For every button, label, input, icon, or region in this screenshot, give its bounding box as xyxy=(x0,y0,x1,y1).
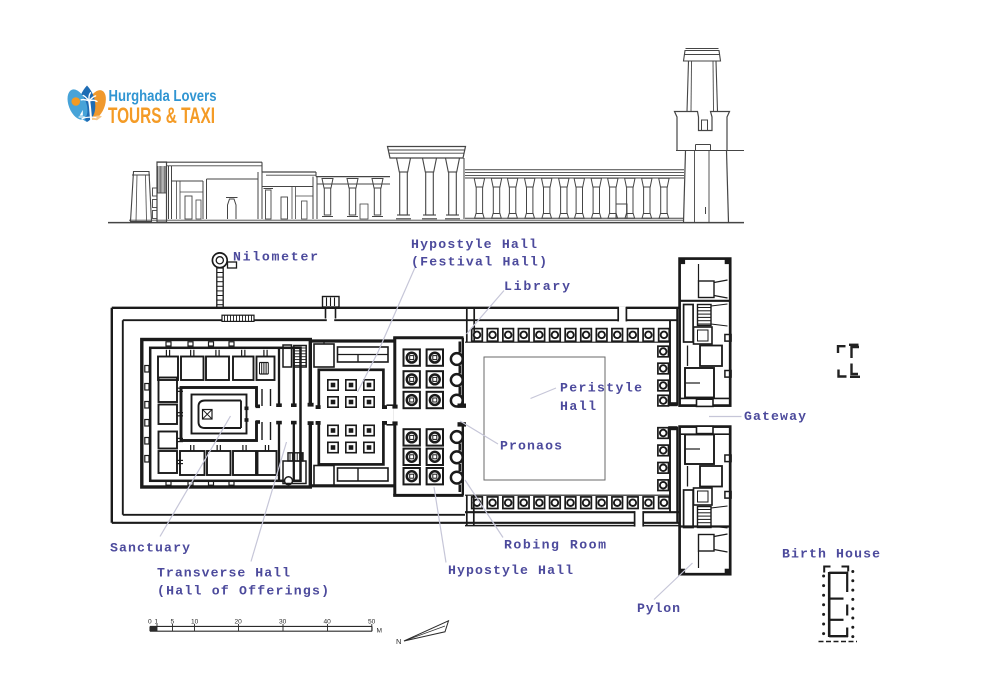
svg-text:10: 10 xyxy=(191,619,199,626)
svg-text:M: M xyxy=(377,628,383,635)
svg-text:0: 0 xyxy=(148,619,152,626)
svg-text:Robing Room: Robing Room xyxy=(504,538,606,553)
svg-text:20: 20 xyxy=(235,619,243,626)
svg-text:N: N xyxy=(396,637,401,646)
svg-text:(Festival Hall): (Festival Hall) xyxy=(411,255,547,270)
svg-text:Hall: Hall xyxy=(560,399,596,414)
svg-text:Hypostyle Hall: Hypostyle Hall xyxy=(448,563,573,578)
svg-text:1: 1 xyxy=(155,619,159,626)
svg-text:Gateway: Gateway xyxy=(744,409,806,424)
svg-text:50: 50 xyxy=(368,619,376,626)
svg-text:Nilometer: Nilometer xyxy=(233,250,318,265)
svg-text:Library: Library xyxy=(504,279,570,294)
svg-text:Pronaos: Pronaos xyxy=(500,439,562,454)
svg-text:Hypostyle Hall: Hypostyle Hall xyxy=(411,237,537,252)
svg-text:Sanctuary: Sanctuary xyxy=(110,541,190,556)
svg-text:30: 30 xyxy=(279,619,287,626)
svg-text:TOURS & TAXI: TOURS & TAXI xyxy=(108,103,215,128)
svg-text:Pylon: Pylon xyxy=(637,601,680,616)
svg-text:Peristyle: Peristyle xyxy=(560,381,642,396)
svg-text:(Hall of Offerings): (Hall of Offerings) xyxy=(157,584,329,599)
svg-text:40: 40 xyxy=(324,619,332,626)
svg-text:Transverse Hall: Transverse Hall xyxy=(157,566,290,581)
svg-text:Birth House: Birth House xyxy=(782,547,880,562)
svg-text:5: 5 xyxy=(171,619,175,626)
